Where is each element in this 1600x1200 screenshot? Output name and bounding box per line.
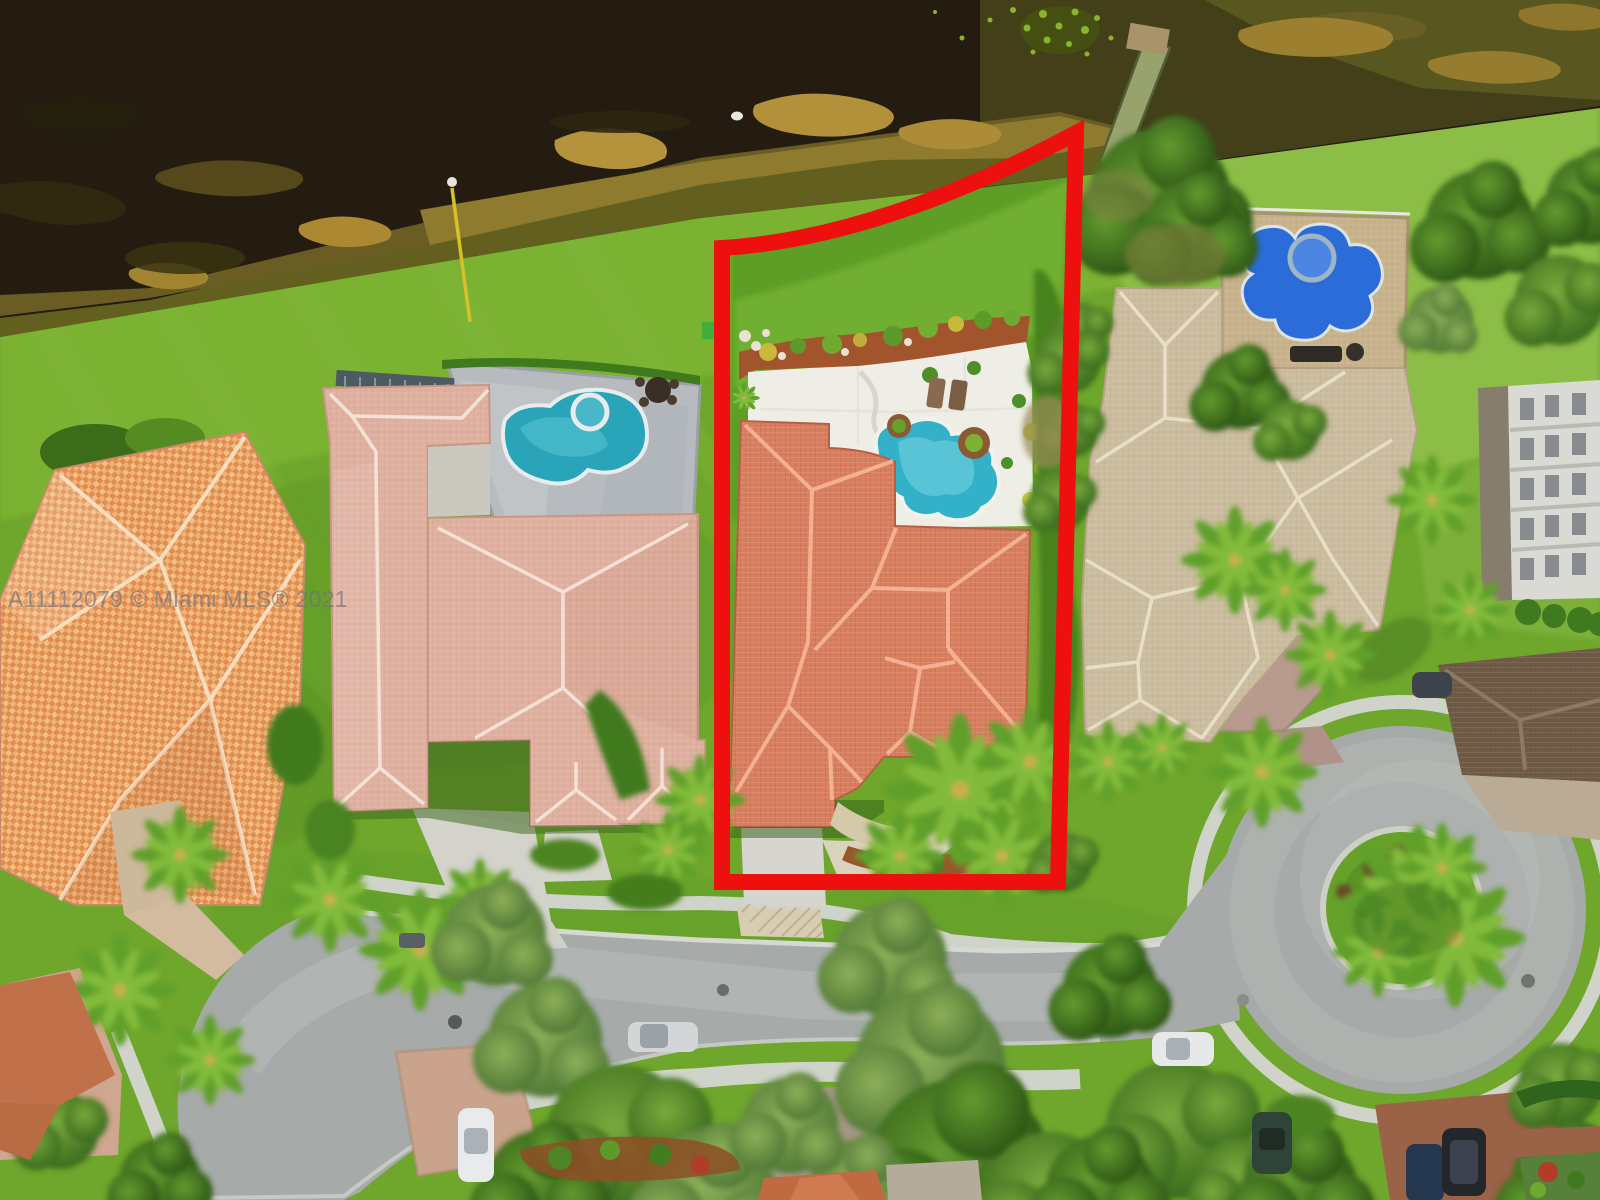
svg-text:A11112079 © Miami MLS® 2021: A11112079 © Miami MLS® 2021 [8, 586, 348, 612]
